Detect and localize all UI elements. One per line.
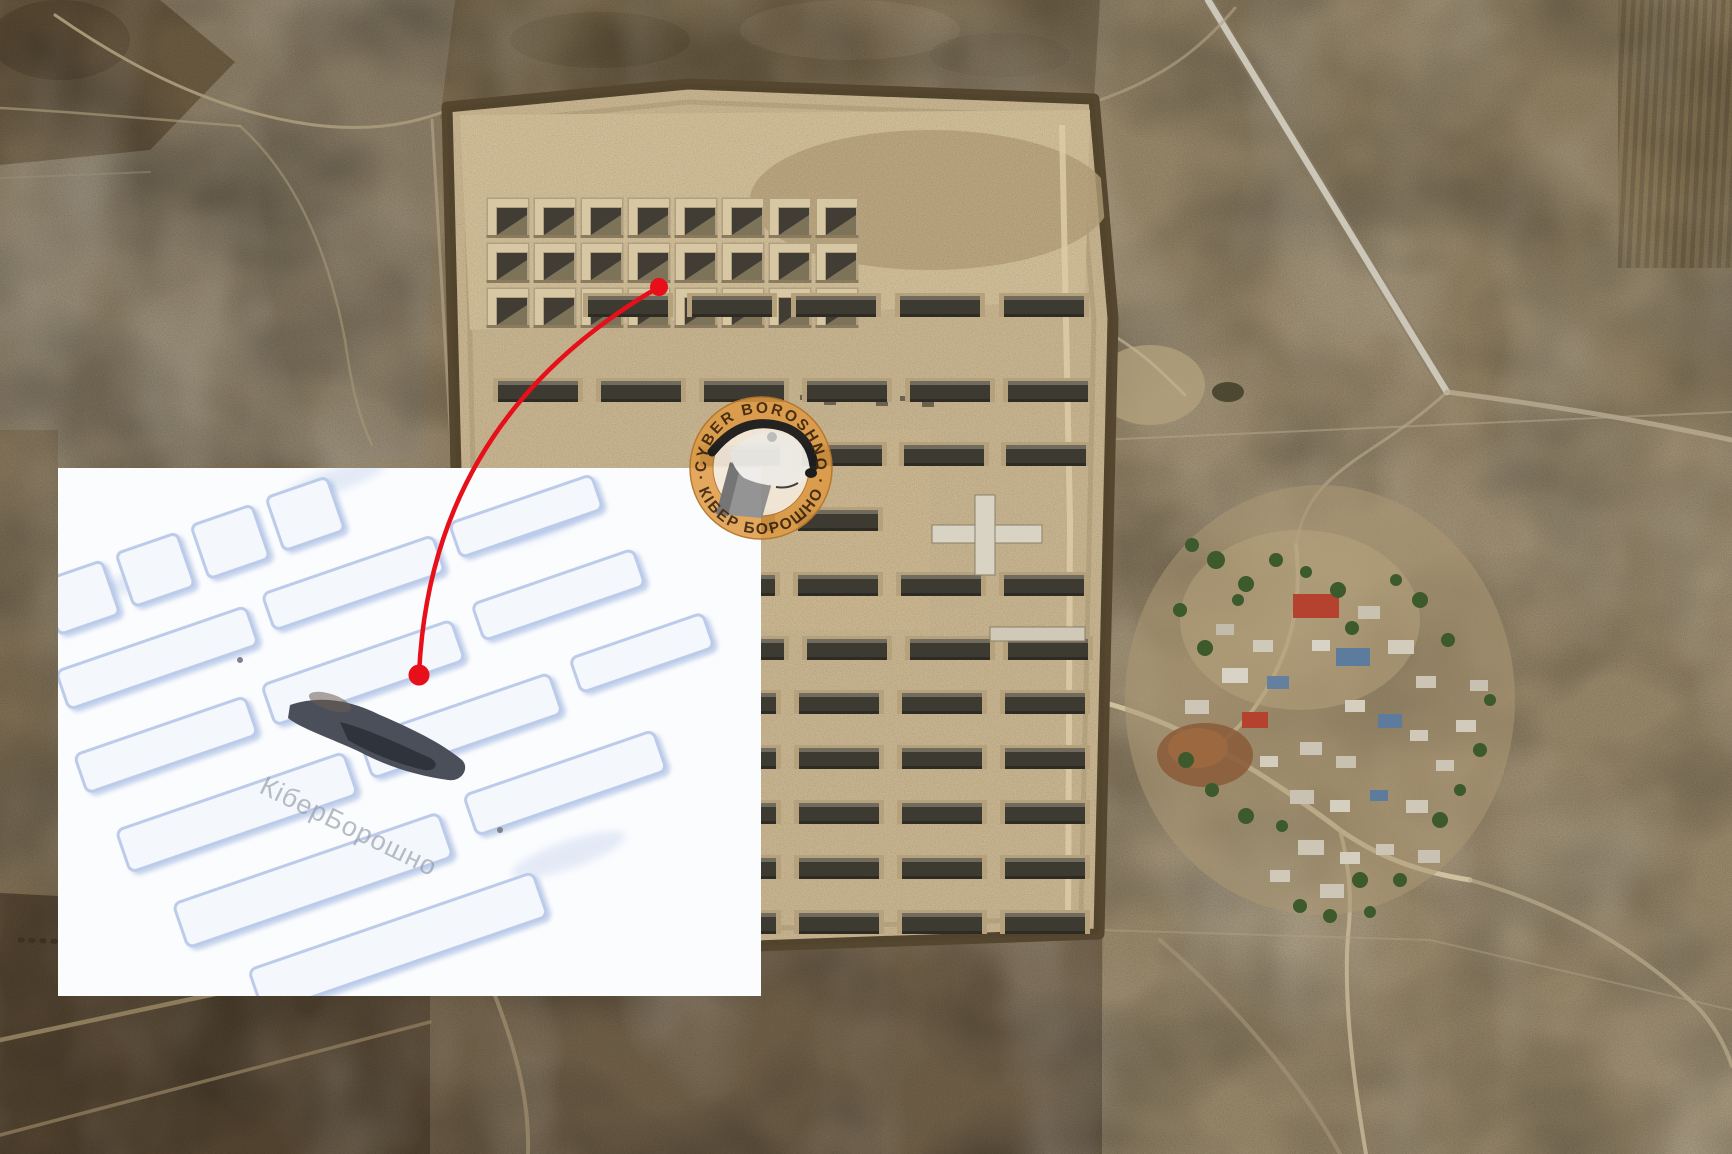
inset-winter-image: КіберБорошно: [15, 376, 779, 1045]
annotated-satellite-graphic: КіберБорошно CYBER BOROSHNO · КІБЕР БОРО…: [0, 0, 1732, 1154]
source-marker: [650, 278, 668, 296]
target-marker: [409, 665, 430, 686]
satellite-scene: КіберБорошно CYBER BOROSHNO · КІБЕР БОРО…: [0, 0, 1732, 1154]
logo-badge: CYBER BOROSHNO · КІБЕР БОРОШНО ·: [690, 397, 832, 539]
